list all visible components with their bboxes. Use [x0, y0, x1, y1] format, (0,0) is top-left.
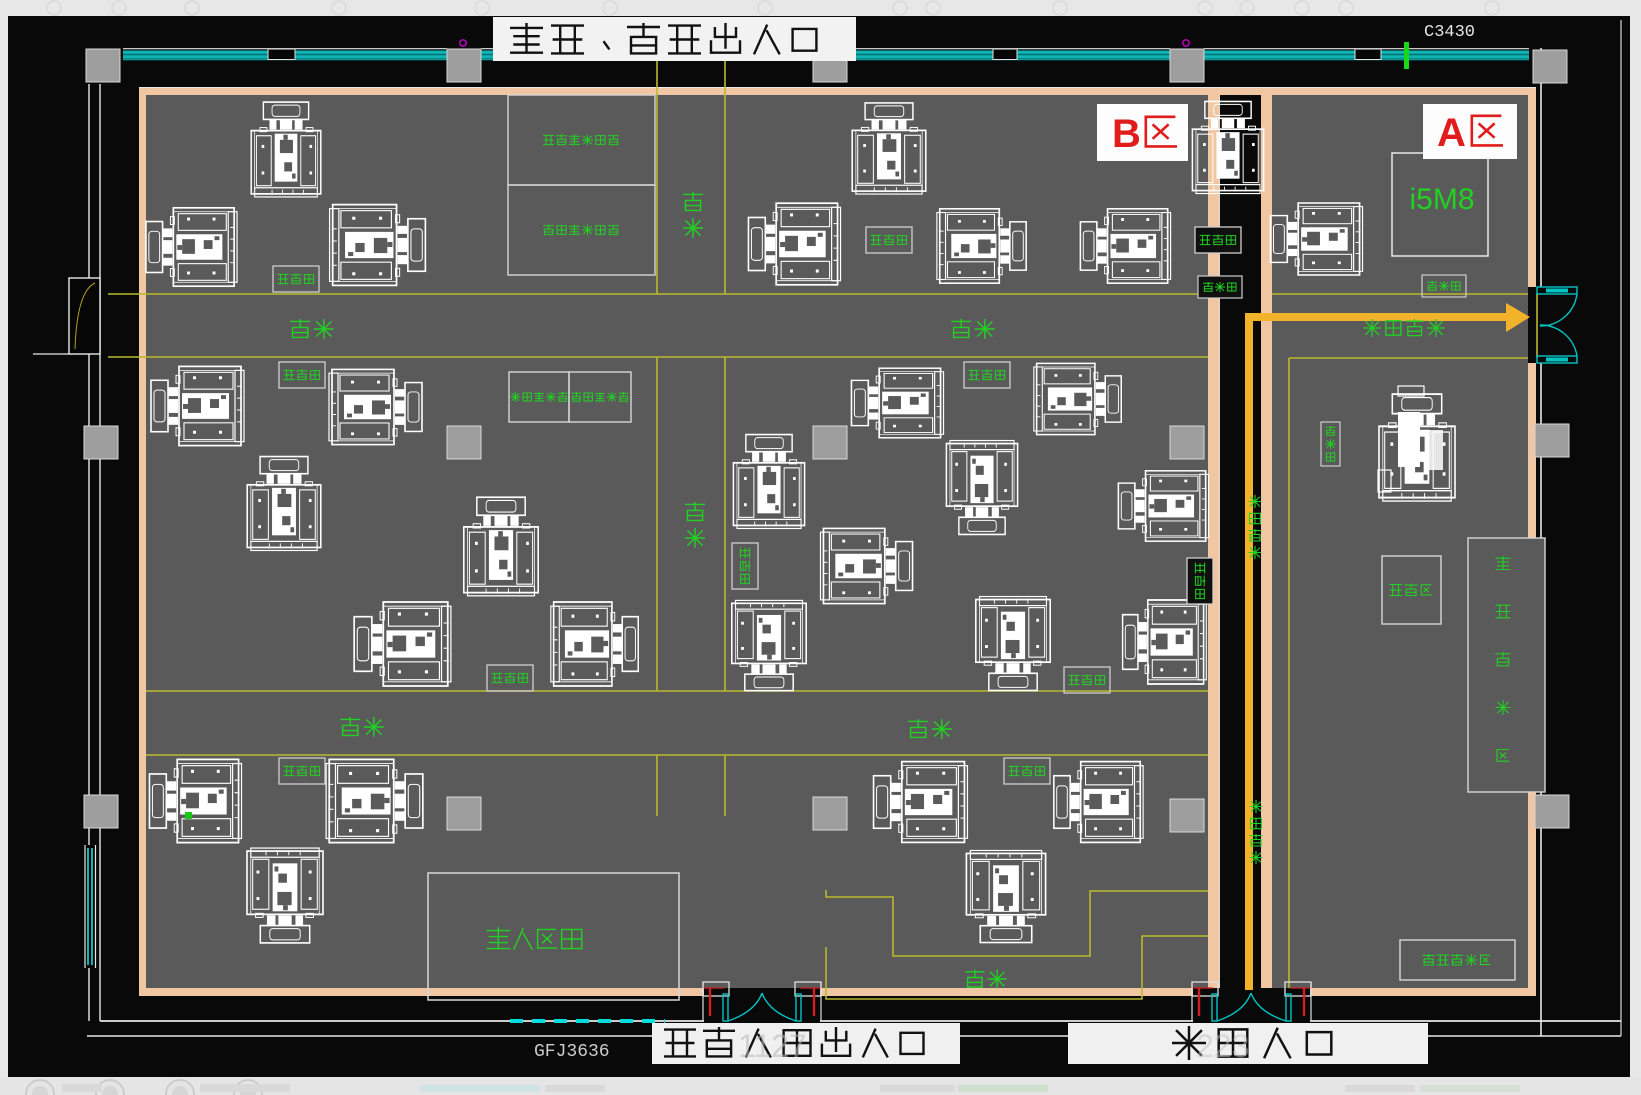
svg-text:223: 223	[1196, 1028, 1249, 1064]
svg-text:GFJ3636: GFJ3636	[534, 1042, 610, 1062]
svg-text:C3430: C3430	[1424, 23, 1475, 42]
svg-text:A: A	[1437, 111, 1466, 155]
svg-text:1127: 1127	[738, 1028, 807, 1064]
svg-text:B: B	[1112, 112, 1141, 156]
svg-text:i5M8: i5M8	[1409, 183, 1474, 216]
